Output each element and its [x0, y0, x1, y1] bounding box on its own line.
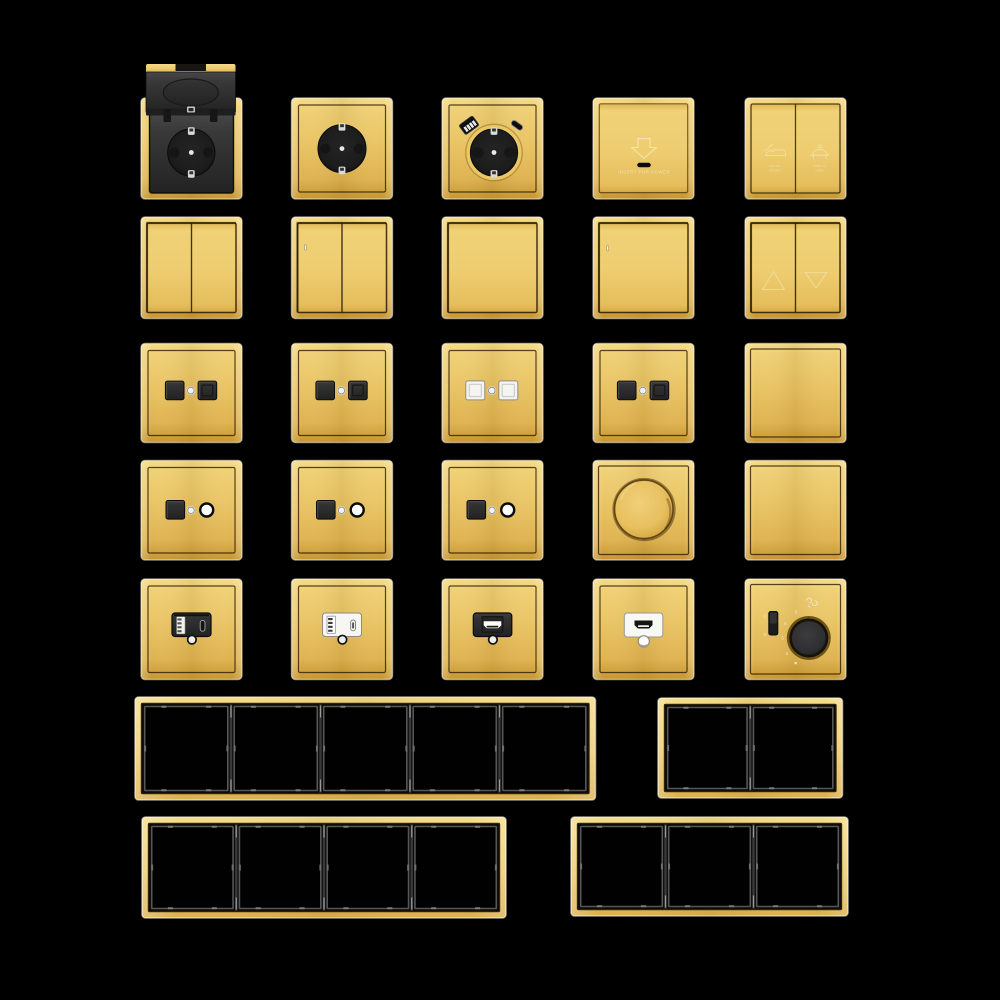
- svg-text:4: 4: [784, 621, 787, 626]
- svg-text:Do not: Do not: [769, 164, 779, 168]
- svg-text:2: 2: [786, 651, 789, 656]
- svg-text:disturb: disturb: [769, 168, 780, 172]
- svg-text:INSERT FOR POWER: INSERT FOR POWER: [618, 170, 670, 175]
- svg-text:room: room: [816, 168, 824, 172]
- svg-text:1: 1: [763, 614, 766, 619]
- svg-text:5: 5: [795, 610, 798, 615]
- svg-text:0: 0: [763, 632, 766, 637]
- svg-text:Make up: Make up: [813, 164, 826, 168]
- svg-text:3: 3: [781, 636, 784, 641]
